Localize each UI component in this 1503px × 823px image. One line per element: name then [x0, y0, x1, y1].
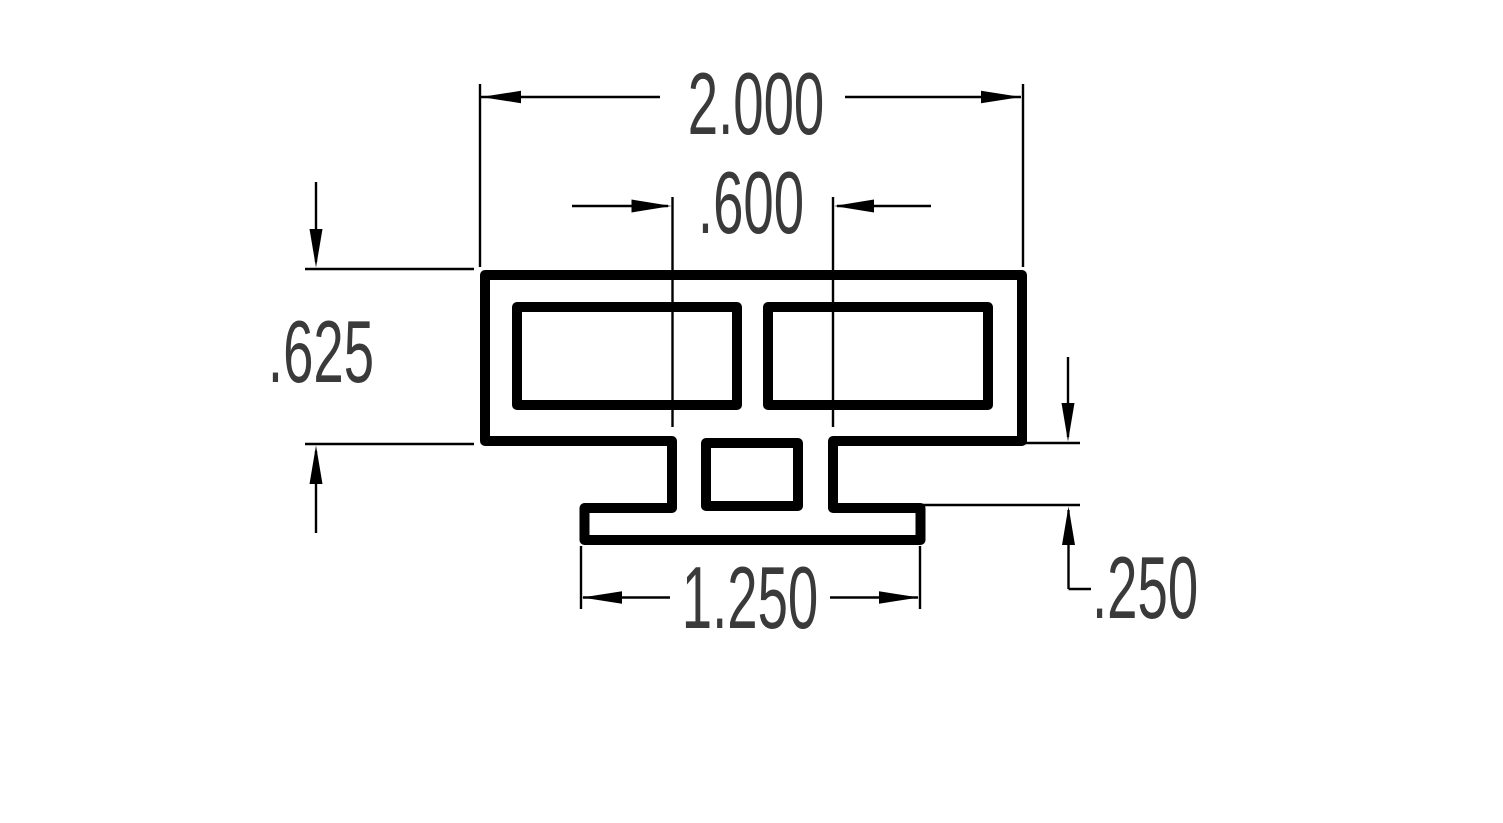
profile-outline-group: [485, 275, 1022, 540]
dim-arrowhead-right: [879, 591, 919, 603]
dimension-stem-height: .250: [922, 357, 1198, 637]
dim-arrowhead-left: [632, 200, 672, 213]
left-cavity-outline: [517, 307, 737, 405]
dim-arrowhead-up: [1062, 507, 1075, 546]
dim-arrowhead-right: [834, 200, 874, 213]
technical-drawing: 2.000 .600 .625: [0, 0, 1503, 823]
dimension-stem-width: .600: [572, 154, 931, 427]
dimension-label-base-width: 1.250: [682, 549, 819, 648]
dim-arrowhead-up: [310, 446, 323, 485]
dimension-body-height: .625: [268, 182, 474, 533]
dim-arrowhead-down: [310, 229, 323, 268]
dimension-label-stem-width: .600: [698, 154, 804, 253]
drawing-page: 2.000 .600 .625: [0, 0, 1503, 823]
dim-arrowhead-left: [582, 591, 622, 603]
dimension-label-overall-width: 2.000: [688, 55, 825, 154]
dimension-base-width: 1.250: [581, 546, 920, 647]
dim-arrowhead-down: [1062, 403, 1075, 442]
dimension-label-stem-height: .250: [1092, 539, 1198, 638]
right-cavity-outline: [768, 307, 988, 405]
dimension-label-body-height: .625: [268, 303, 374, 402]
dim-arrowhead-left: [481, 91, 521, 103]
stem-cavity-outline: [706, 443, 798, 506]
dim-arrowhead-right: [981, 91, 1021, 103]
